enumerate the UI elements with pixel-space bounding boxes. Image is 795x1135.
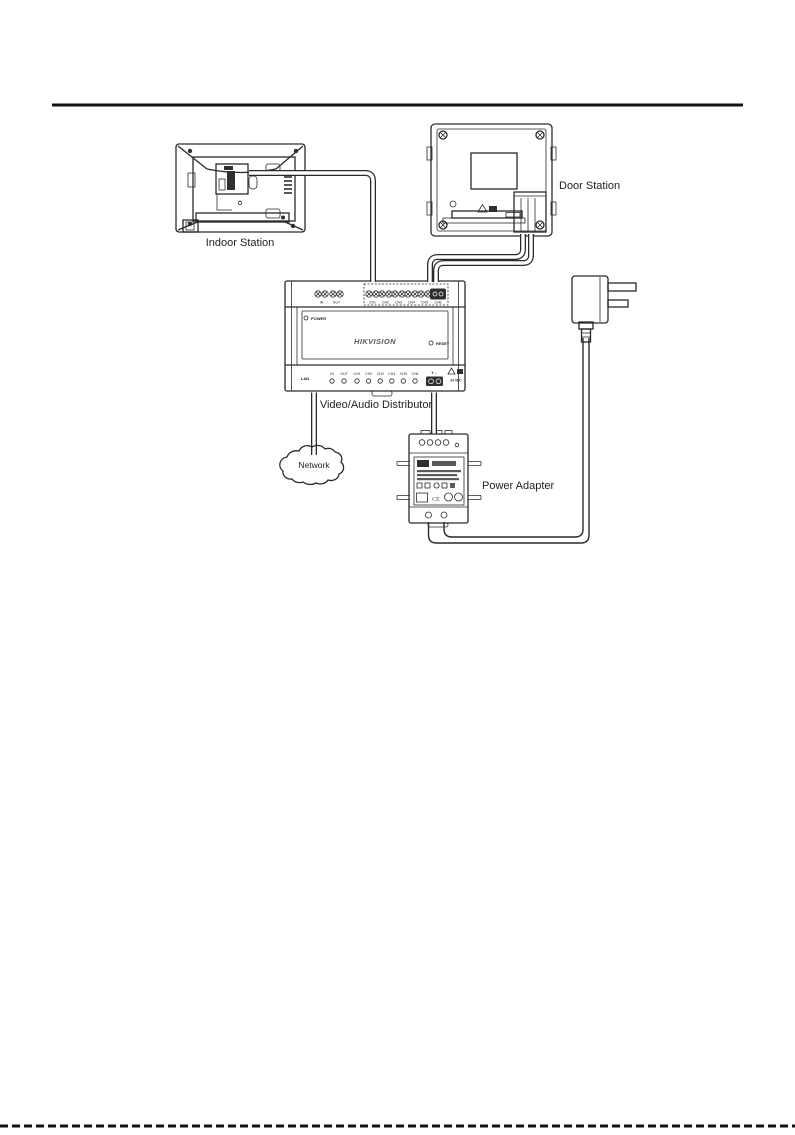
dc-voltage-label: 24 VDC: [450, 379, 462, 383]
terminal-ch2-icon: [379, 291, 392, 297]
input-terminal: [419, 440, 425, 446]
brand-logo: HIKVISION: [354, 337, 396, 346]
screw-hole-icon: [238, 201, 242, 205]
input-terminal: [435, 440, 441, 446]
terminal-out-icon: [330, 291, 343, 297]
distributor-bottom-row: LAN IN OUT CH1 CH2 CH3 CH4 CH5 CH6 + -: [301, 368, 463, 386]
screw-icon: [536, 221, 544, 229]
terminal-in-label: IN: [320, 301, 324, 305]
screw-hole-icon: [450, 201, 456, 207]
ch1-led: [355, 379, 359, 383]
power-adapter: CE: [397, 431, 481, 528]
dc-polarity-label: + -: [431, 371, 437, 376]
ch2-led-label: CH2: [365, 372, 372, 376]
out-led: [342, 379, 346, 383]
ch5-label: CH5: [421, 301, 428, 305]
input-terminal: [427, 440, 433, 446]
indoor-station-connector: [216, 164, 257, 194]
terminal-out-label: OUT: [333, 301, 341, 305]
cert-icon: [455, 493, 463, 501]
distributor-top-terminals: IN OUT CH1 CH2 CH3 CH4 CH5 CH6: [315, 284, 448, 305]
power-led-label: POWER: [311, 316, 326, 321]
cert-icon: [417, 483, 422, 488]
video-audio-distributor: IN OUT CH1 CH2 CH3 CH4 CH5 CH6 POWER HIK…: [285, 281, 465, 396]
rear-window: [471, 153, 517, 189]
ch2-led: [366, 379, 370, 383]
ch5-led-label: CH5: [400, 372, 407, 376]
ch1-led-label: CH1: [353, 372, 360, 376]
cable-door-to-distributor-1: [430, 234, 523, 282]
door-station-label: Door Station: [559, 180, 620, 192]
door-station: [427, 124, 556, 236]
in-led-label: IN: [330, 372, 334, 376]
ch1-label: CH1: [369, 301, 376, 305]
ch6-label: CH6: [434, 301, 441, 305]
manual-page: Indoor Station Door Station: [0, 0, 795, 1135]
out-led-label: OUT: [340, 372, 348, 376]
wiring-diagram: Indoor Station Door Station: [0, 0, 795, 1135]
ch4-led: [390, 379, 394, 383]
terminal-ch1-icon: [366, 291, 379, 297]
plug-prong-icon: [608, 283, 636, 291]
network-label: Network: [298, 460, 330, 470]
indoor-station-label: Indoor Station: [206, 237, 275, 249]
cert-icon: [434, 483, 439, 488]
model-number-bar: [432, 461, 456, 466]
ce-mark: CE: [432, 497, 440, 503]
caution-icon: [448, 368, 463, 374]
cable-adapter-to-plug: [429, 338, 590, 543]
ch6-led-label: CH6: [411, 372, 418, 376]
reset-button-icon: [429, 341, 433, 345]
output-terminal: [441, 512, 447, 518]
terminal-in-icon: [315, 291, 328, 297]
cert-icon: [450, 483, 455, 488]
reset-label: RESET: [436, 341, 450, 346]
ch3-led: [378, 379, 382, 383]
terminal-ch4-icon: [405, 291, 418, 297]
screw-icon: [536, 131, 544, 139]
terminal-ch5-icon: [418, 291, 431, 297]
vendor-logo: [417, 460, 429, 467]
ch4-label: CH4: [408, 301, 415, 305]
output-terminal: [426, 512, 432, 518]
ch2-label: CH2: [382, 301, 389, 305]
ch4-led-label: CH4: [388, 372, 395, 376]
ch6-led: [413, 379, 417, 383]
mount-clip: [188, 173, 195, 187]
ul-mark-icon: [445, 493, 453, 501]
ch3-label: CH3: [395, 301, 402, 305]
cert-icon: [442, 483, 447, 488]
ch5-led: [401, 379, 405, 383]
cert-icon: [425, 483, 430, 488]
distributor-label: Video/Audio Distributor: [320, 399, 433, 411]
indoor-station: [176, 144, 305, 232]
cable-indoor-to-distributor: [249, 173, 373, 282]
ch3-led-label: CH3: [377, 372, 384, 376]
screw-icon: [439, 131, 447, 139]
terminal-ch6-plug-icon: [430, 289, 446, 300]
terminal-ch3-icon: [392, 291, 405, 297]
power-adapter-label: Power Adapter: [482, 480, 554, 492]
screw-icon: [294, 149, 298, 153]
power-led-icon: [304, 316, 308, 320]
plug-prong-icon: [608, 300, 628, 307]
input-terminal: [443, 440, 449, 446]
lan-label: LAN: [301, 376, 309, 381]
power-plug: [572, 276, 636, 342]
screw-icon: [188, 149, 192, 153]
strain-relief: [579, 322, 593, 342]
adapter-spec-label: CE: [414, 457, 464, 505]
screw-icon: [291, 224, 295, 228]
cert-icon: [417, 493, 428, 502]
din-clip: [372, 391, 392, 396]
screw-icon: [188, 222, 192, 226]
in-led: [330, 379, 334, 383]
